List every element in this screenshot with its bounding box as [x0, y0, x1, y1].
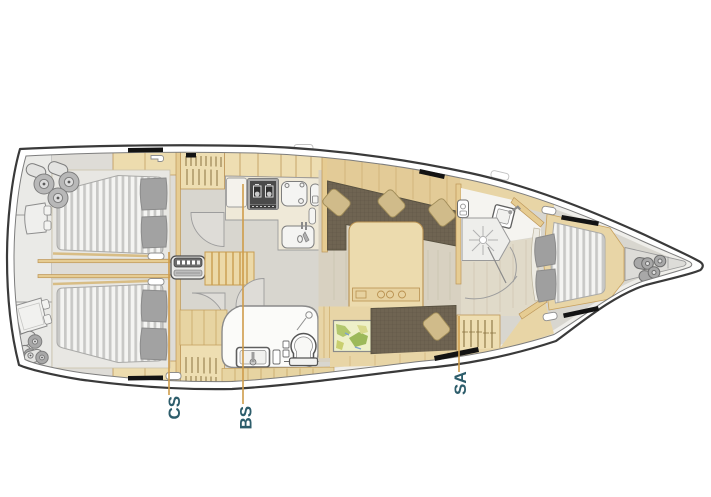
- svg-text:SA: SA: [451, 371, 470, 395]
- svg-text:BS: BS: [237, 406, 256, 430]
- svg-text:CS: CS: [165, 396, 184, 420]
